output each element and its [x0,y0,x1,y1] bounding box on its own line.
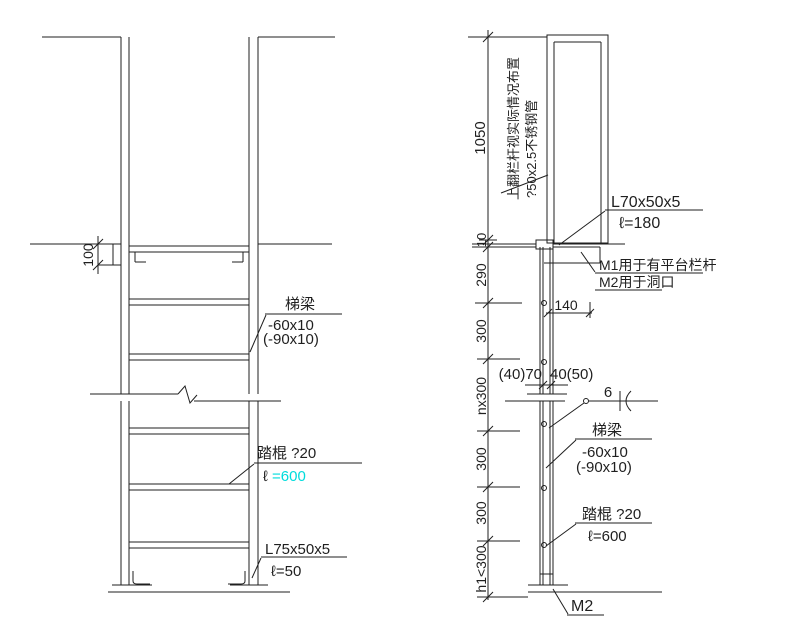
base-mark-m2: M2 [571,598,593,615]
base-assembly [108,571,290,592]
ladder-detail-drawing: 100 [0,0,808,622]
break-symbol [90,386,281,403]
base-assembly-side [528,574,662,592]
anchor-type-note: M1用于有平台栏杆 M2用于洞口 [581,252,716,290]
side-beam-title: 梯梁 [592,422,622,439]
dim-1050: 1050 [472,121,489,154]
hole-spacing-dimensions: (40)70 40(50) [499,366,594,389]
side-rung-length: ℓ=600 [588,528,627,545]
beam-callout-title: 梯梁 [285,296,315,313]
handrail-note-callout: 上翻栏杆视实际情况布置 ?50x2.5不锈钢管 [501,57,548,200]
side-section-view: 1050 10 290 300 nx300 300 300 h1<300 上翻栏… [468,30,716,615]
base-angle-size: L75x50x5 [265,541,330,558]
base-angle-callout: L75x50x5 ℓ=50 [252,541,347,580]
rung-callout-title: 踏棍 ?20 [257,445,316,462]
right-stringer [249,37,258,585]
side-beam-alt-size: (-90x10) [576,459,632,476]
dim-300-a: 300 [473,319,489,343]
base-mark-callout: M2 [553,589,604,615]
handrail-note-line2: ?50x2.5不锈钢管 [524,100,539,198]
spacing-140-dimension: 140 [544,297,594,318]
bolt-holes [542,301,547,548]
top-beam [129,246,249,262]
embed-dimension: 100 [80,236,113,274]
dim-embed-100: 100 [80,243,96,267]
top-angle-size: L70x50x5 [611,194,680,211]
beam-callout: 梯梁 -60x10 (-90x10) [250,296,342,352]
front-elevation-view: 100 [30,37,362,592]
dim-140: 140 [554,297,578,313]
weld-size: 6 [604,384,612,401]
platform-lines [30,244,332,265]
side-rung-title: 踏棍 ?20 [582,506,641,523]
anchor-note-line2: M2用于洞口 [599,274,674,290]
rungs [129,299,249,548]
rung-callout-side: 踏棍 ?20 ℓ=600 [546,506,652,546]
base-angle-length: ℓ=50 [271,563,301,580]
beam-callout-side: 梯梁 -60x10 (-90x10) [546,422,652,476]
dim-300-b: 300 [473,447,489,471]
dim-300-c: 300 [473,501,489,525]
rung-callout-length: ℓ =600 [263,468,306,485]
anchor-note-line1: M1用于有平台栏杆 [599,257,716,273]
handrail-note-line1: 上翻栏杆视实际情况布置 [506,57,521,200]
dim-hole-left: (40)70 [499,366,542,383]
drawing-canvas: 100 [0,0,808,622]
top-angle-length: ℓ=180 [619,215,660,232]
beam-callout-alt-size: (-90x10) [263,331,319,348]
dim-h1-300: h1<300 [473,545,489,592]
top-angle-callout: L70x50x5 ℓ=180 [559,194,703,245]
dim-10: 10 [474,233,489,247]
dim-290: 290 [473,263,489,287]
dim-nx300: nx300 [473,377,489,415]
left-stringer [121,37,129,585]
dim-hole-right: 40(50) [550,366,593,383]
